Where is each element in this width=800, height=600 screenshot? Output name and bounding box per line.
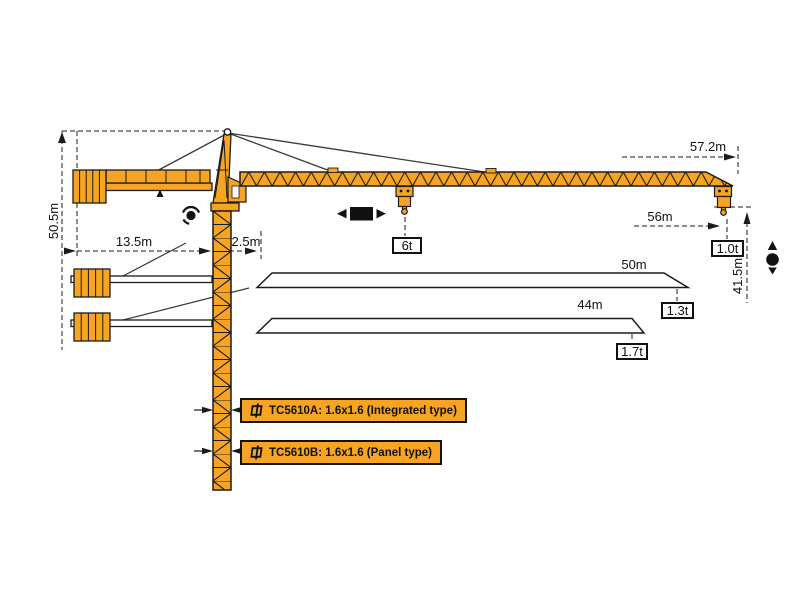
load-box-mid: 6t: [392, 237, 422, 254]
tower-mast: [213, 211, 231, 490]
hoisting-icon: [766, 241, 779, 275]
tie-rods: [155, 133, 491, 173]
mast-type-label-b-text: TC5610B: 1.6x1.6 (Panel type): [269, 447, 432, 459]
dim-tower-height: 50.5m: [47, 199, 61, 243]
mast-section-icon: [250, 403, 263, 418]
mast-type-label-a-text: TC5610A: 1.6x1.6 (Integrated type): [269, 405, 457, 417]
mast-type-label-a: TC5610A: 1.6x1.6 (Integrated type): [240, 398, 467, 423]
hook-tip: [721, 210, 727, 216]
dim-lifting-height: 41.5m: [731, 254, 745, 298]
hook-mid: [402, 209, 408, 215]
dim-max-working-radius: 56m: [642, 210, 678, 224]
mast-width-arrow-tails: [194, 410, 203, 451]
load-box-tip-50m: 1.3t: [661, 302, 694, 319]
ballast-row-1: [71, 269, 212, 297]
mast-type-label-b: TC5610B: 1.6x1.6 (Panel type): [240, 440, 442, 465]
load-box-tip-57m: 1.0t: [711, 240, 744, 257]
slewing-icon: [183, 207, 199, 224]
mast-section-icon: [250, 445, 263, 460]
jib-variant-50m-label: 50m: [610, 258, 658, 272]
jib-variant-50m: [257, 273, 688, 288]
load-box-tip-44m: 1.7t: [616, 343, 648, 360]
jib-variant-44m-label: 44m: [566, 298, 614, 312]
trolley-tip: [715, 187, 732, 216]
dim-rear-clearance: 2.5m: [224, 235, 268, 249]
main-jib: [240, 168, 733, 186]
trolley-mid: [396, 187, 413, 215]
counterweight-block: [73, 170, 106, 203]
trolley-travel-icon: [337, 207, 386, 221]
slewing-platform: [211, 203, 239, 211]
jib-variant-44m: [257, 319, 644, 334]
dim-jib-length: 57.2m: [684, 140, 732, 154]
dim-counter-jib-length: 13.5m: [110, 235, 158, 249]
tower-crane-diagram: 50.5m 13.5m 2.5m 57.2m 56m 41.5m 50m 44m…: [0, 0, 800, 600]
crane-line-drawing: [0, 0, 800, 600]
ballast-row-2: [71, 313, 212, 341]
